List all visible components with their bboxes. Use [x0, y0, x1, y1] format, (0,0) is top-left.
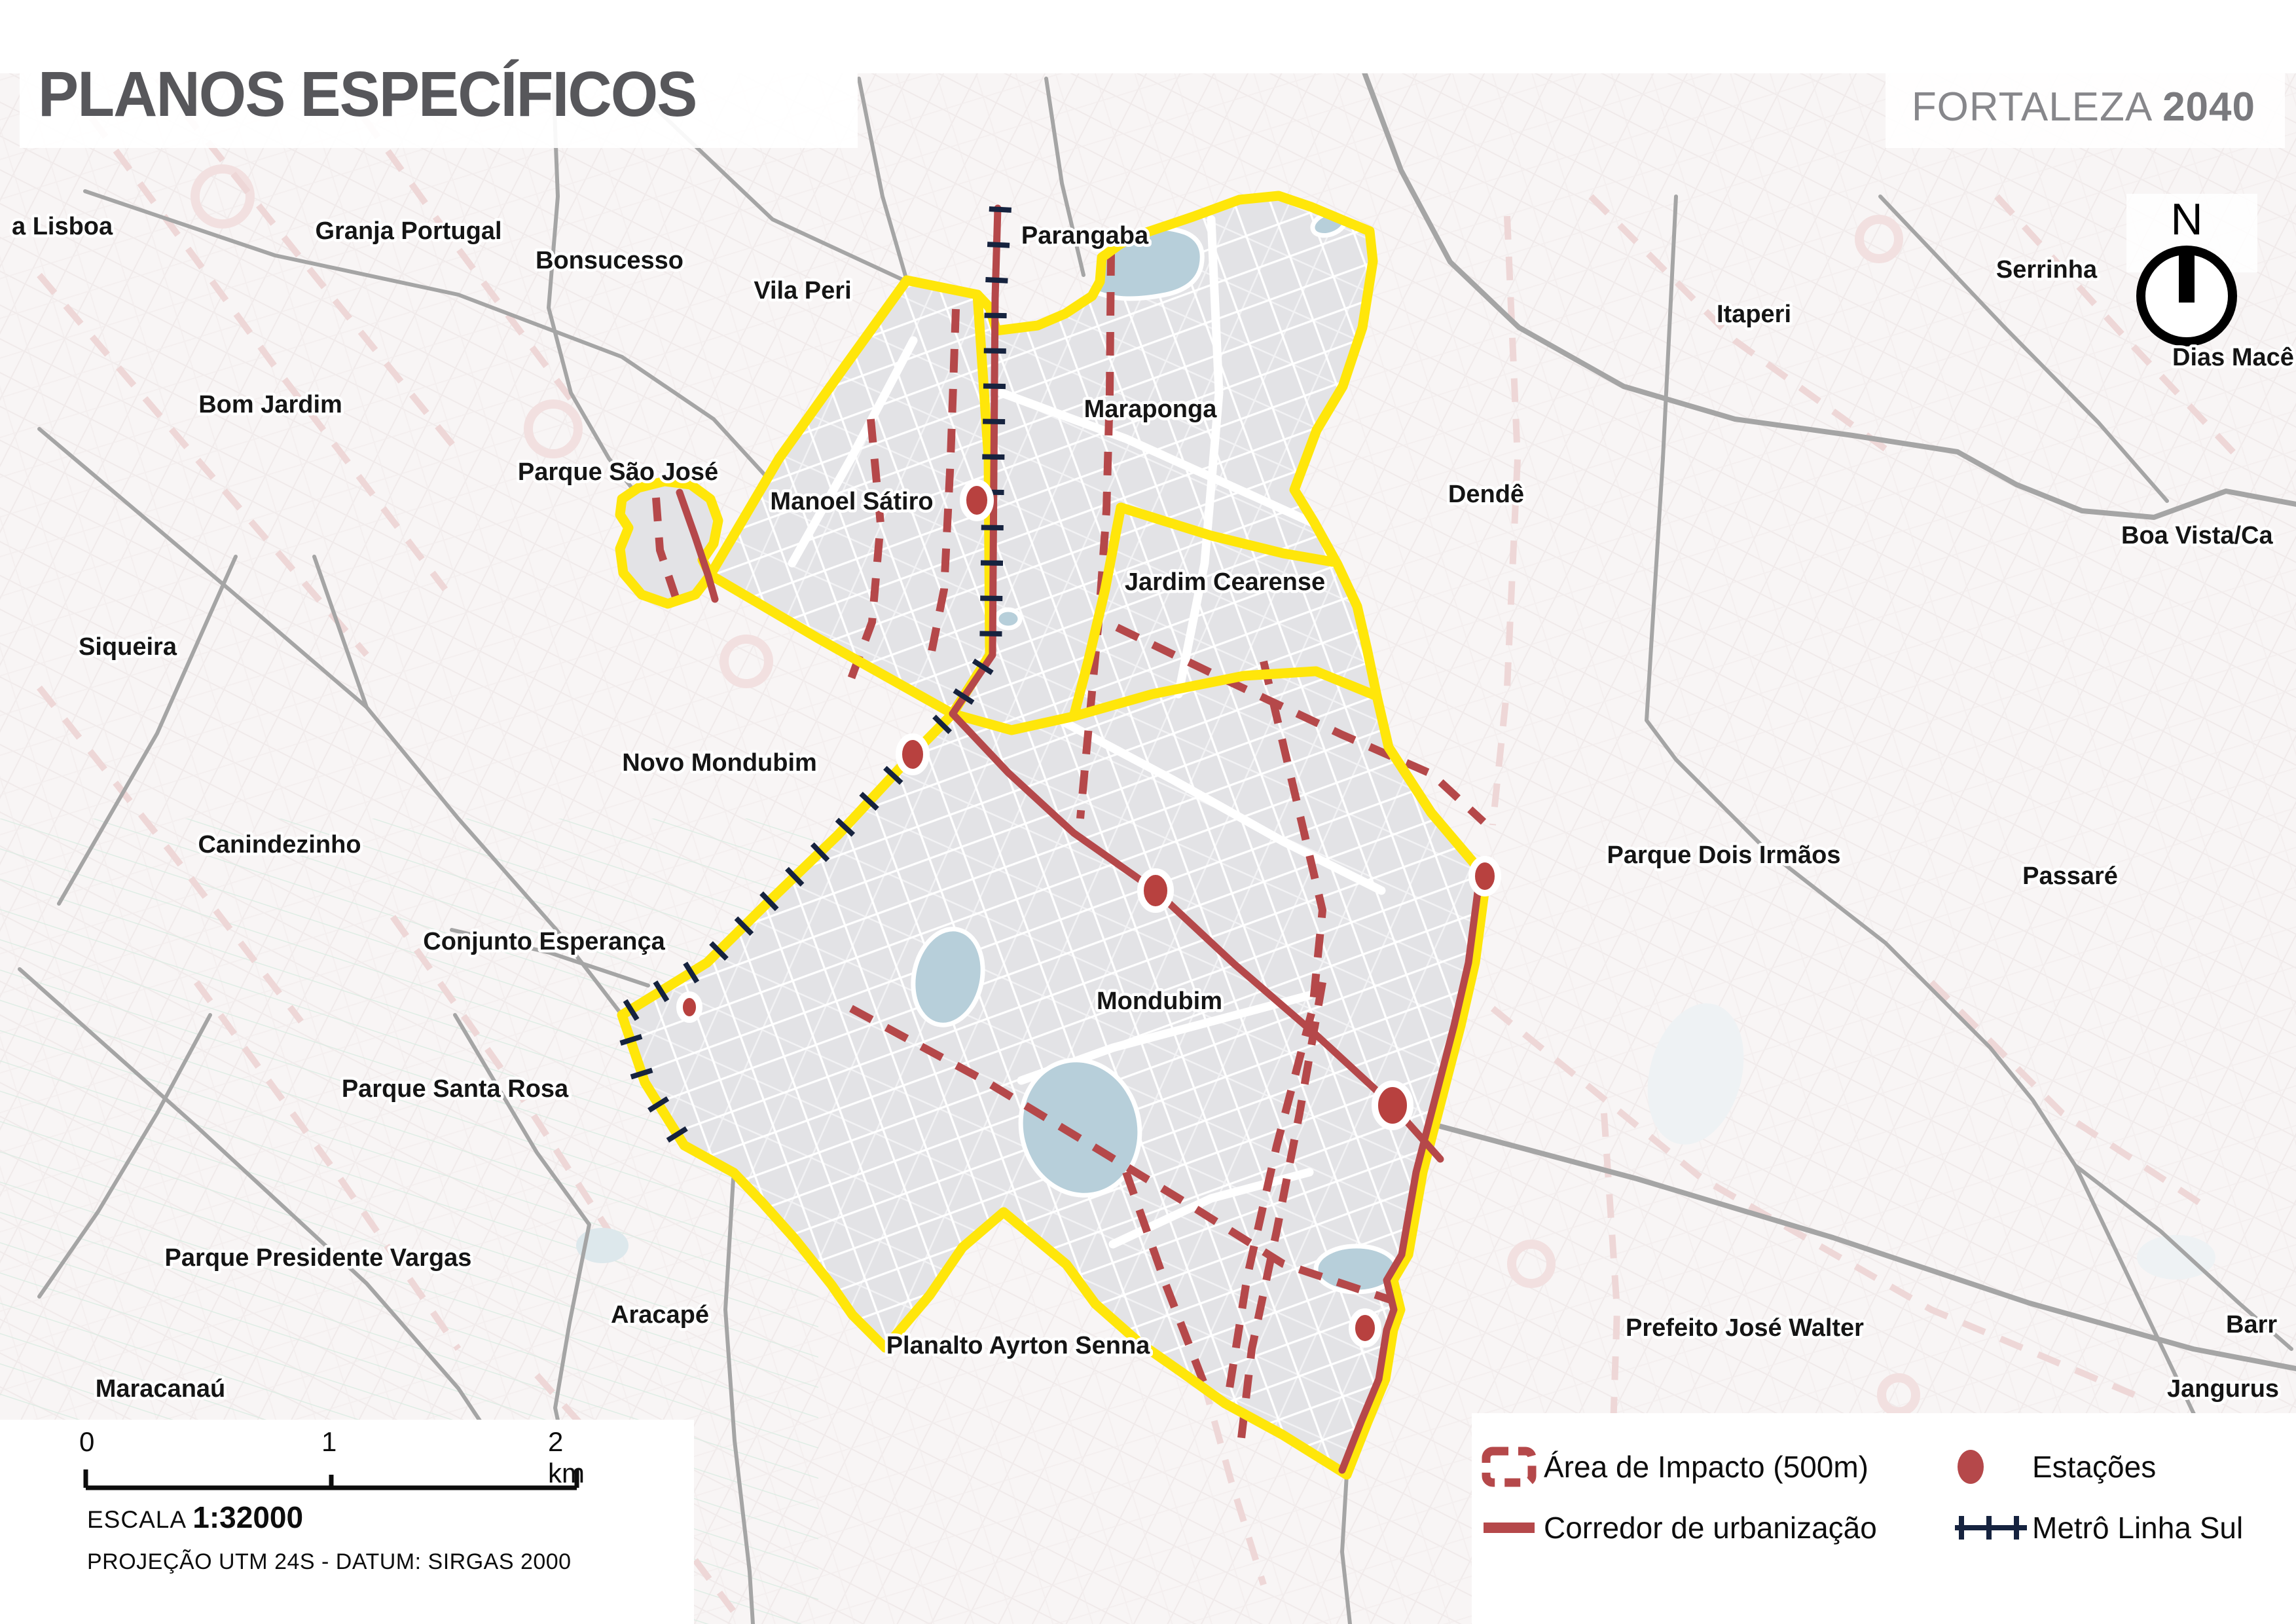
- map-canvas: N a Lisboa Granja Portugal Bonsucesso Vi…: [0, 0, 2296, 1624]
- page-title: PLANOS ESPECÍFICOS: [38, 58, 696, 131]
- map-label: Siqueira: [79, 633, 177, 661]
- map-label: Serrinha: [1996, 256, 2098, 284]
- map-label: Bonsucesso: [536, 247, 683, 274]
- map-label: Prefeito José Walter: [1626, 1314, 1864, 1342]
- scale-value: 1:32000: [192, 1500, 303, 1534]
- map-label: Bom Jardim: [198, 391, 342, 418]
- compass-north-label: N: [2170, 194, 2202, 244]
- station-dot: [899, 737, 926, 772]
- map-label: Parque Dois Irmãos: [1607, 841, 1841, 869]
- map-label: Itaperi: [1717, 301, 1791, 328]
- legend-stations-label: Estações: [2032, 1449, 2243, 1485]
- scalebar-ruler-icon: [82, 1464, 586, 1492]
- map-label: Dias Macê: [2172, 344, 2294, 371]
- scalebar-tick-0: 0: [79, 1426, 94, 1458]
- map-label: Jardim Cearense: [1125, 568, 1325, 596]
- map-label: Granja Portugal: [315, 217, 501, 245]
- map-label: Parque Santa Rosa: [342, 1075, 569, 1103]
- map-label: Canindezinho: [198, 831, 361, 858]
- station-dot: [1352, 1312, 1378, 1344]
- projection-text: PROJEÇÃO UTM 24S - DATUM: SIRGAS 2000: [87, 1549, 572, 1575]
- map-label: Manoel Sátiro: [770, 488, 933, 515]
- station-dot: [680, 995, 699, 1020]
- map-label: Planalto Ayrton Senna: [886, 1332, 1150, 1359]
- map-label: Jangurus: [2167, 1375, 2279, 1403]
- legend: Área de Impacto (500m) Estações Corredor…: [1481, 1446, 2243, 1545]
- station-dot: [1472, 859, 1498, 893]
- map-label: Maraponga: [1084, 396, 1218, 423]
- map-label: Conjunto Esperança: [423, 928, 665, 955]
- corridor-icon: [1481, 1518, 1537, 1538]
- brand-logo: FORTALEZA 2040: [1912, 84, 2255, 130]
- brand-name: FORTALEZA: [1912, 84, 2151, 130]
- impact-area-icon: [1481, 1446, 1537, 1488]
- map-label: a Lisboa: [12, 213, 113, 240]
- map-label: Passaré: [2022, 862, 2118, 890]
- legend-corridor-label: Corredor de urbanização: [1544, 1510, 1952, 1545]
- map-label: Dendê: [1448, 481, 1524, 508]
- scalebar-tick-1: 1: [321, 1426, 337, 1458]
- legend-impact-area-label: Área de Impacto (500m): [1544, 1449, 1952, 1485]
- map-label: Parangaba: [1021, 222, 1149, 249]
- brand-year: 2040: [2162, 84, 2255, 130]
- map-label: Parque Presidente Vargas: [165, 1244, 472, 1272]
- compass-needle-icon: [2179, 250, 2195, 303]
- map-poster: N a Lisboa Granja Portugal Bonsucesso Vi…: [0, 0, 2296, 1624]
- map-label: Aracapé: [611, 1301, 709, 1329]
- map-label: Mondubim: [1097, 987, 1222, 1015]
- station-dot-mondubim: [1140, 872, 1171, 910]
- scale-text: ESCALA 1:32000: [87, 1500, 303, 1535]
- metro-line-icon: [1952, 1511, 2030, 1545]
- map-label: Maracanaú: [96, 1375, 226, 1403]
- station-icon: [1952, 1446, 1992, 1488]
- map-label: Vila Peri: [754, 277, 851, 304]
- map-label: Boa Vista/Ca: [2121, 522, 2273, 549]
- map-label: Parque São José: [518, 458, 718, 486]
- legend-metro-label: Metrô Linha Sul: [2032, 1510, 2243, 1545]
- scale-label: ESCALA: [87, 1506, 185, 1533]
- station-dot: [963, 483, 991, 518]
- station-dot-large: [1375, 1084, 1410, 1127]
- map-label: Novo Mondubim: [622, 749, 817, 777]
- map-label: Barr: [2226, 1311, 2277, 1338]
